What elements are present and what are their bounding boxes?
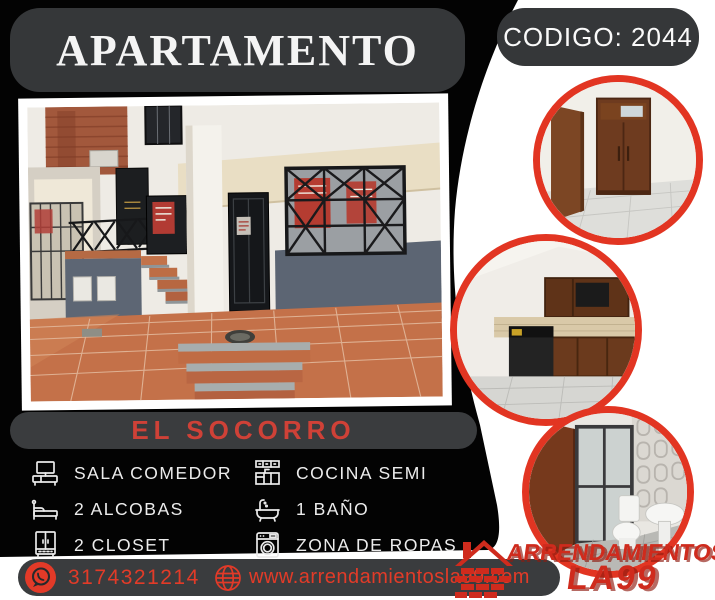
feature-label: 2 CLOSET [74,535,171,556]
phone-number[interactable]: 3174321214 [68,559,200,596]
feature-label: 1 BAÑO [296,499,369,520]
flyer-canvas: APARTAMENTO CODIGO: 2044 [0,0,715,600]
tv-console-icon [30,458,60,488]
feature-label: 2 ALCOBAS [74,499,184,520]
kitchen-photo-circle [450,234,642,426]
washing-machine-icon [252,530,282,560]
bed-icon [30,494,60,524]
brand-logo: ARRENDAMIENTOS LA99 [455,532,715,600]
feature-label: COCINA SEMI [296,463,427,484]
house-bricks-icon [455,534,513,598]
feature-label: SALA COMEDOR [74,463,232,484]
feature-label: ZONA DE ROPAS [296,535,457,556]
location-name: EL SOCORRO [131,415,355,446]
bedroom-illustration [540,82,696,238]
code-pill: CODIGO: 2044 [497,8,699,66]
title-box: APARTAMENTO [10,8,465,92]
bathtub-icon [252,494,282,524]
feature-row: ZONA DE ROPAS [252,527,457,563]
bedroom-photo-circle [533,75,703,245]
globe-icon [214,564,242,592]
feature-row: COCINA SEMI [252,455,457,491]
features-left-column: SALA COMEDOR 2 ALCOBAS [30,455,232,563]
kitchen-cabinets-icon [252,458,282,488]
location-banner: EL SOCORRO [10,412,477,449]
features-right-column: COCINA SEMI 1 BAÑO ZO [252,455,457,563]
kitchen-illustration [457,241,635,419]
feature-row: 2 ALCOBAS [30,491,232,527]
whatsapp-icon [25,562,56,593]
brand-name-line2: LA99 [564,559,661,598]
listing-code: CODIGO: 2044 [503,22,693,53]
feature-row: 2 CLOSET [30,527,232,563]
feature-row: SALA COMEDOR [30,455,232,491]
closet-icon [30,530,60,560]
house-facade-illustration [27,102,443,401]
main-exterior-photo [18,93,452,410]
page-title: APARTAMENTO [56,25,419,76]
feature-row: 1 BAÑO [252,491,457,527]
